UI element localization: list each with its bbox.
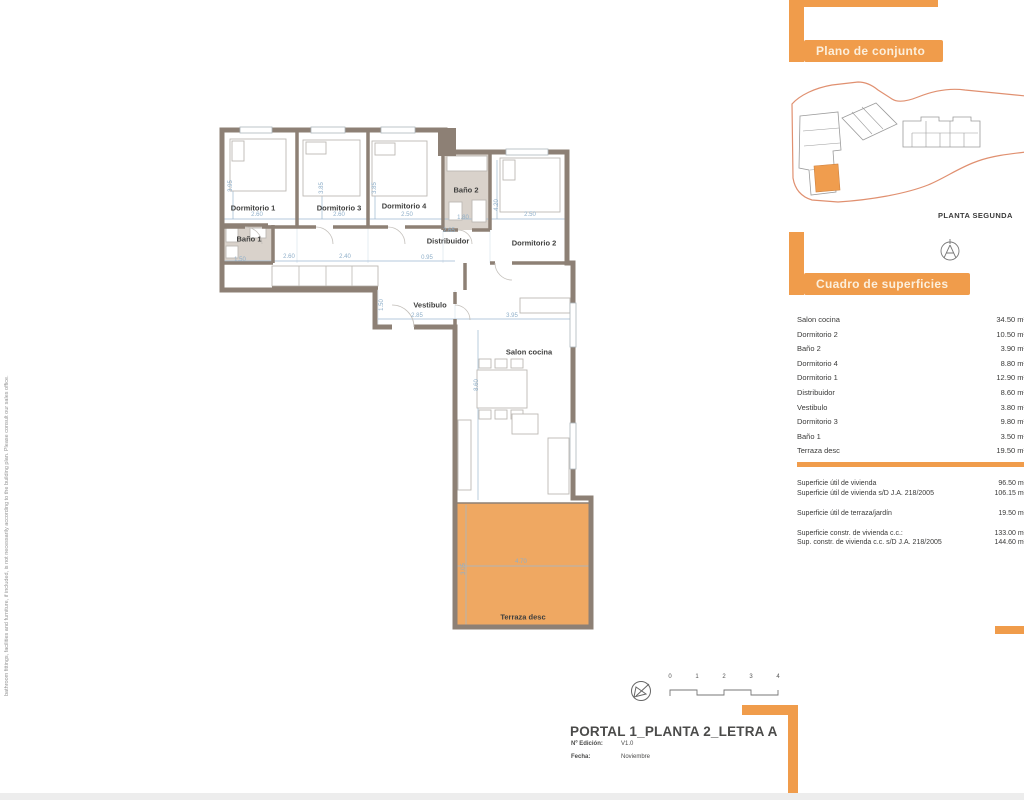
dim-label: 2.50 — [401, 212, 413, 218]
dim-label: 2.60 — [251, 212, 263, 218]
scale-bar — [670, 690, 778, 696]
edition-value: V1.0 — [621, 741, 633, 747]
table-row: Baño 13.50 m² — [0, 432, 1024, 444]
row-value: 8.80 m² — [950, 359, 1024, 368]
row-value: 10.50 m² — [950, 330, 1024, 339]
summary-value: 106.15 m² — [950, 490, 1024, 497]
row-value: 3.80 m² — [950, 403, 1024, 412]
north-arrow-icon — [632, 682, 651, 701]
dim-label: 3.85 — [372, 182, 378, 194]
row-label: Vestibulo — [797, 403, 827, 412]
row-value: 3.90 m² — [950, 344, 1024, 353]
scale-tick-4: 4 — [776, 674, 779, 680]
dim-label: 2.60 — [283, 254, 295, 260]
row-label: Baño 1 — [797, 432, 821, 441]
dim-label: 2.40 — [339, 254, 351, 260]
table-row: Dormitorio 112.90 m² — [0, 373, 1024, 385]
table-row: Vestibulo3.80 m² — [0, 403, 1024, 415]
summary-label: Sup. constr. de vivienda c.c. s/D J.A. 2… — [797, 539, 942, 546]
dim-label: 2.60 — [333, 212, 345, 218]
summary-label: Superficie constr. de vivienda c.c.: — [797, 530, 903, 537]
room-label-distribuidor: Distribuidor — [427, 237, 470, 246]
summary-value: 96.50 m² — [950, 480, 1024, 487]
summary-label: Superficie útil de terraza/jardín — [797, 510, 892, 517]
site-plan-drawing — [792, 82, 1024, 202]
row-label: Dormitorio 4 — [797, 359, 838, 368]
planta-segunda-caption: PLANTA SEGUNDA — [938, 211, 1013, 220]
header-accent-bar — [789, 232, 804, 295]
plan-title: PORTAL 1_PLANTA 2_LETRA A — [570, 724, 778, 739]
room-label-terraza: Terraza desc — [500, 613, 545, 622]
row-label: Baño 2 — [797, 344, 821, 353]
drawing-layer — [0, 0, 1024, 800]
table-row: Salon cocina34.50 m² — [0, 315, 1024, 327]
table-row: Dormitorio 210.50 m² — [0, 330, 1024, 342]
table-row: Baño 23.90 m² — [0, 344, 1024, 356]
bottom-edge-strip — [0, 793, 1024, 800]
row-label: Terraza desc — [797, 446, 840, 455]
row-label: Dormitorio 2 — [797, 330, 838, 339]
room-label-dormitorio-2: Dormitorio 2 — [512, 239, 557, 248]
site-plan-header: Plano de conjunto — [804, 40, 943, 62]
header-accent-strip — [789, 0, 938, 7]
page: Dormitorio 1 Dormitorio 3 Dormitorio 4 B… — [0, 0, 1024, 800]
summary-row: Sup. constr. de vivienda c.c. s/D J.A. 2… — [0, 539, 1024, 551]
room-label-vestibulo: Vestibulo — [413, 301, 446, 310]
scale-tick-0: 0 — [668, 674, 671, 680]
date-label: Fecha: — [571, 754, 590, 760]
scale-tick-1: 1 — [695, 674, 698, 680]
dim-label: 1.80 — [457, 215, 469, 221]
surfaces-header: Cuadro de superficies — [804, 273, 970, 295]
scale-tick-2: 2 — [722, 674, 725, 680]
row-value: 9.80 m² — [950, 417, 1024, 426]
compass-icon — [941, 239, 959, 260]
row-value: 12.90 m² — [950, 373, 1024, 382]
summary-row: Superficie útil de vivienda s/D J.A. 218… — [0, 490, 1024, 502]
row-label: Dormitorio 3 — [797, 417, 838, 426]
edition-label: Nº Edición: — [571, 741, 603, 747]
summary-value: 19.50 m² — [950, 510, 1024, 517]
dim-label: 4.70 — [515, 559, 527, 565]
row-label: Salon cocina — [797, 315, 840, 324]
room-label-bano-1: Baño 1 — [236, 235, 261, 244]
site-plan-header-label: Plano de conjunto — [804, 44, 925, 58]
summary-label: Superficie útil de vivienda s/D J.A. 218… — [797, 490, 934, 497]
accent-bar-small — [995, 626, 1024, 634]
dim-label: 0.95 — [421, 255, 433, 261]
date-value: Noviembre — [621, 754, 650, 760]
table-row: Dormitorio 39.80 m² — [0, 417, 1024, 429]
room-label-bano-2: Baño 2 — [453, 186, 478, 195]
table-row: Distribuidor8.60 m² — [0, 388, 1024, 400]
disclaimer-text: bathroom fittings, facilities and furnit… — [4, 296, 10, 696]
summary-row: Superficie útil de terraza/jardín19.50 m… — [0, 510, 1024, 522]
table-divider — [797, 462, 1024, 467]
summary-value: 144.60 m² — [950, 539, 1024, 546]
row-label: Distribuidor — [797, 388, 835, 397]
table-row: Terraza desc19.50 m² — [0, 446, 1024, 458]
titleblock-accent-vbar — [788, 705, 798, 800]
header-accent-bar — [789, 0, 804, 62]
summary-value: 133.00 m² — [950, 530, 1024, 537]
row-value: 34.50 m² — [950, 315, 1024, 324]
dim-label: 1.50 — [234, 257, 246, 263]
table-row: Dormitorio 48.80 m² — [0, 359, 1024, 371]
dim-label: 2.50 — [524, 212, 536, 218]
surfaces-header-label: Cuadro de superficies — [804, 277, 948, 291]
dim-label: 2.65 — [443, 228, 455, 234]
row-value: 8.60 m² — [950, 388, 1024, 397]
dim-label: 3.95 — [228, 180, 234, 192]
row-value: 19.50 m² — [950, 446, 1024, 455]
dim-label: 4.20 — [494, 199, 500, 211]
room-label-dormitorio-4: Dormitorio 4 — [382, 202, 427, 211]
dim-label: 1.50 — [379, 299, 385, 311]
dim-label: 3.85 — [319, 182, 325, 194]
row-label: Dormitorio 1 — [797, 373, 838, 382]
dim-label: 3.05 — [461, 563, 467, 575]
summary-label: Superficie útil de vivienda — [797, 480, 876, 487]
scale-tick-3: 3 — [749, 674, 752, 680]
row-value: 3.50 m² — [950, 432, 1024, 441]
